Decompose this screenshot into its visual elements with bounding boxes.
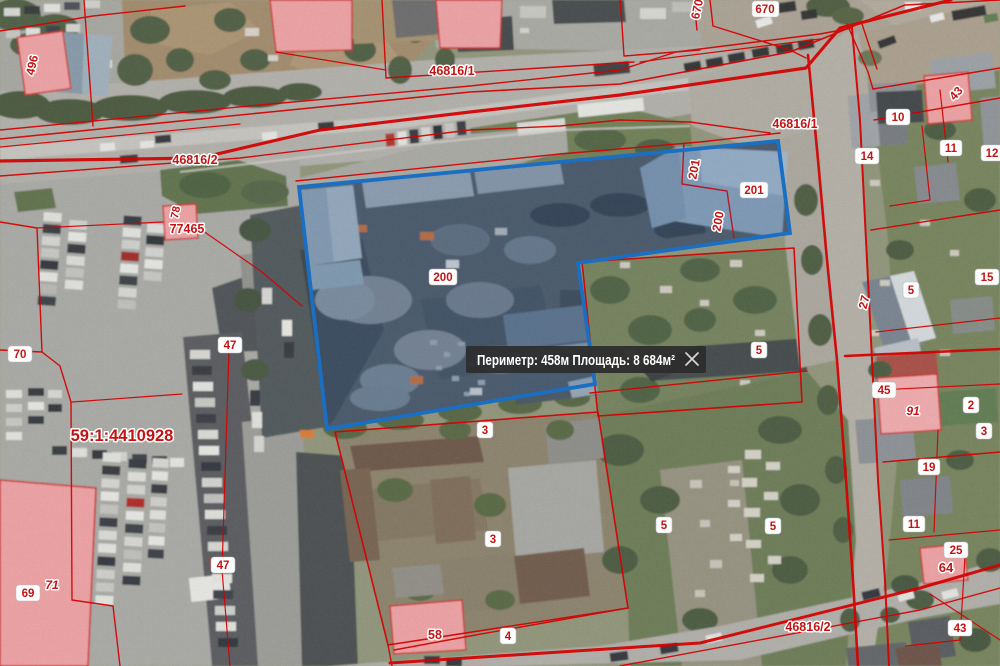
svg-text:10: 10 [892, 112, 905, 124]
svg-text:15: 15 [981, 272, 994, 284]
svg-text:43: 43 [954, 623, 967, 635]
svg-text:64: 64 [939, 560, 954, 575]
svg-text:5: 5 [770, 521, 777, 533]
svg-text:91: 91 [906, 404, 920, 418]
svg-text:58: 58 [428, 628, 442, 642]
svg-text:47: 47 [224, 340, 237, 352]
svg-text:59:1:4410928: 59:1:4410928 [71, 427, 174, 445]
svg-text:3: 3 [482, 425, 488, 437]
svg-text:670: 670 [755, 4, 774, 16]
svg-text:46816/1: 46816/1 [772, 117, 817, 131]
svg-text:201: 201 [744, 185, 764, 197]
svg-text:3: 3 [490, 534, 496, 546]
svg-text:46816/1: 46816/1 [429, 64, 474, 78]
svg-text:19: 19 [923, 462, 936, 474]
svg-text:11: 11 [908, 519, 921, 531]
svg-text:46816/2: 46816/2 [785, 620, 830, 634]
svg-text:46816/2: 46816/2 [172, 153, 217, 167]
svg-text:47: 47 [217, 560, 230, 572]
svg-text:3: 3 [981, 426, 987, 438]
svg-text:78: 78 [169, 205, 183, 219]
svg-text:5: 5 [908, 285, 915, 297]
svg-text:69: 69 [22, 588, 35, 600]
svg-text:71: 71 [45, 578, 59, 592]
svg-text:45: 45 [878, 385, 891, 397]
svg-text:12: 12 [986, 148, 999, 160]
svg-text:Периметр: 458м Площадь: 8 684м: Периметр: 458м Площадь: 8 684м² [477, 353, 675, 369]
svg-text:14: 14 [861, 151, 874, 163]
svg-text:4: 4 [505, 631, 512, 643]
svg-text:200: 200 [433, 272, 452, 284]
svg-text:77465: 77465 [170, 222, 205, 236]
svg-text:5: 5 [661, 520, 668, 532]
svg-text:70: 70 [14, 349, 27, 361]
svg-text:11: 11 [945, 143, 958, 155]
svg-text:25: 25 [950, 545, 963, 557]
svg-text:5: 5 [756, 345, 763, 357]
svg-text:2: 2 [968, 400, 974, 412]
